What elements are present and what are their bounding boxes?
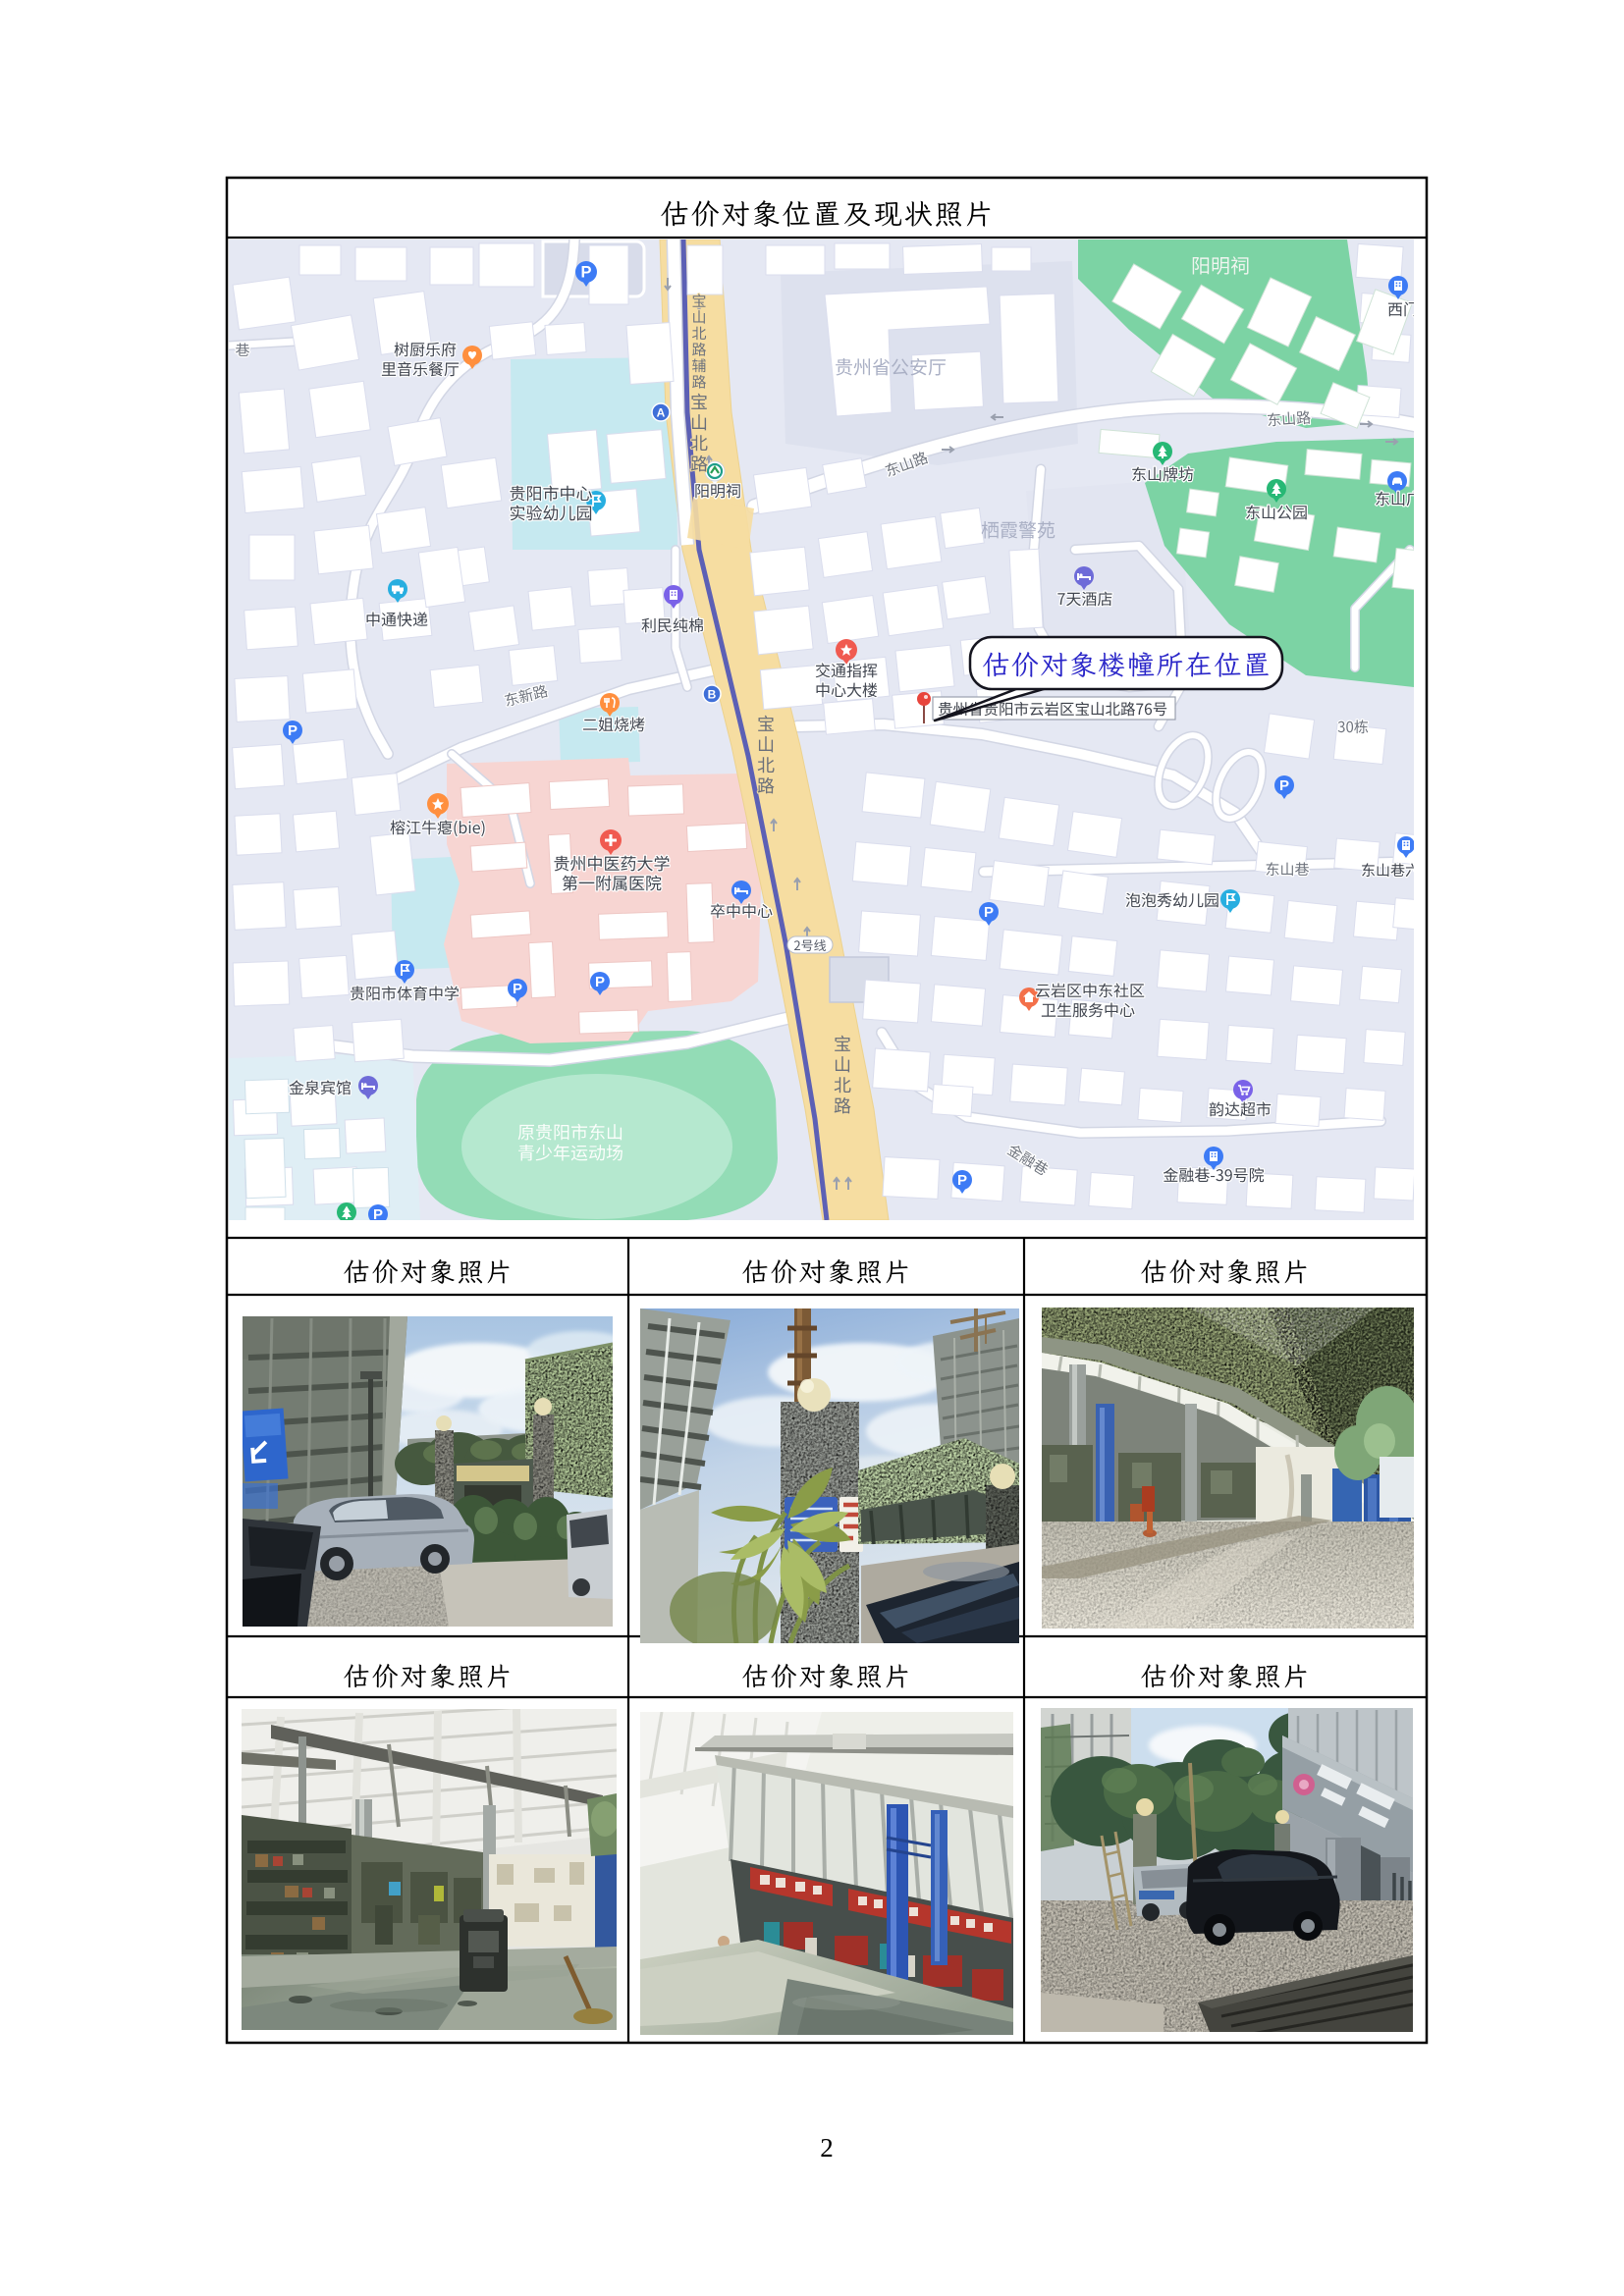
svg-text:A: A bbox=[657, 406, 666, 420]
svg-text:2: 2 bbox=[820, 2133, 834, 2163]
svg-text:P: P bbox=[1279, 777, 1289, 794]
svg-text:B: B bbox=[708, 688, 717, 702]
svg-text:P: P bbox=[373, 1206, 383, 1223]
svg-text:P: P bbox=[957, 1172, 967, 1189]
svg-text:P: P bbox=[595, 974, 605, 990]
svg-text:P: P bbox=[580, 264, 591, 282]
svg-text:P: P bbox=[513, 981, 522, 997]
svg-text:P: P bbox=[288, 722, 298, 739]
svg-text:P: P bbox=[984, 904, 994, 921]
